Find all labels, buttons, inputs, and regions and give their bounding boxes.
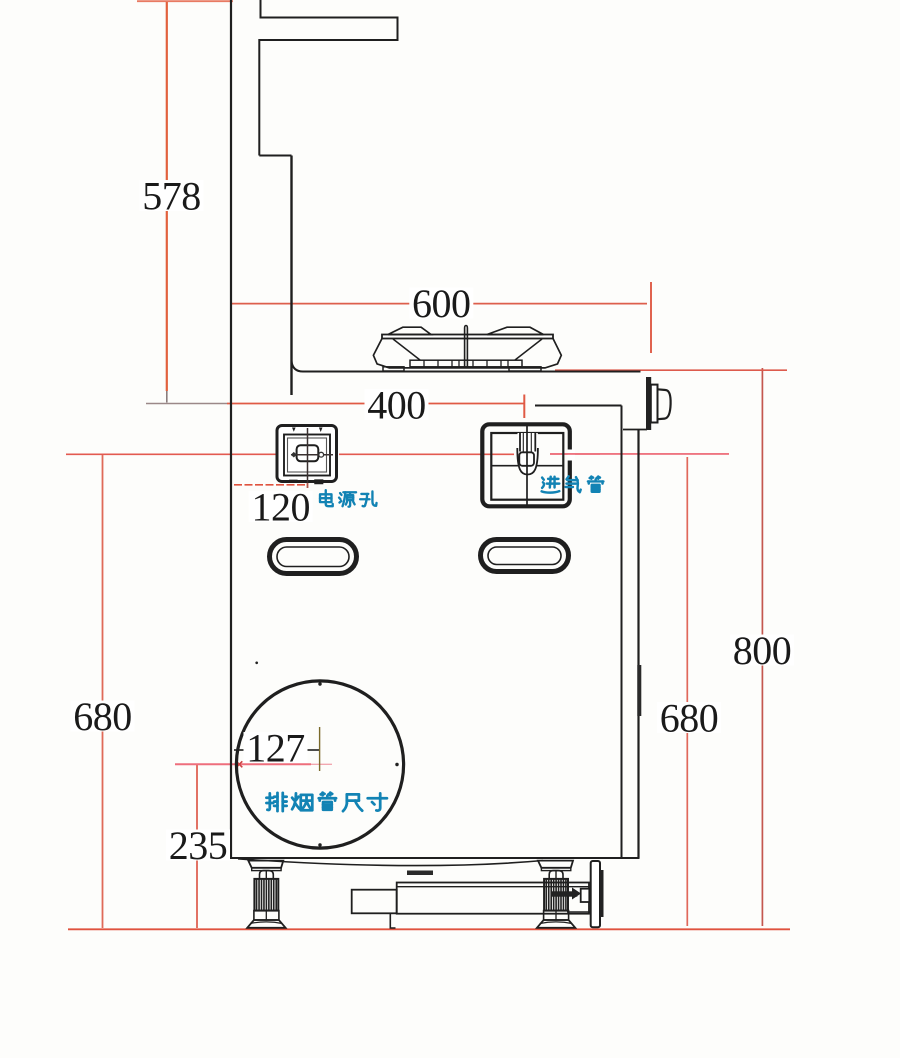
svg-text:400: 400 bbox=[367, 383, 426, 428]
svg-text:120: 120 bbox=[252, 485, 311, 530]
svg-text:600: 600 bbox=[412, 281, 471, 326]
svg-text:800: 800 bbox=[733, 628, 792, 673]
svg-text:680: 680 bbox=[73, 694, 132, 739]
svg-text:127: 127 bbox=[246, 726, 305, 771]
svg-text:235: 235 bbox=[169, 823, 228, 868]
svg-text:578: 578 bbox=[142, 174, 201, 219]
svg-text:680: 680 bbox=[660, 696, 719, 741]
